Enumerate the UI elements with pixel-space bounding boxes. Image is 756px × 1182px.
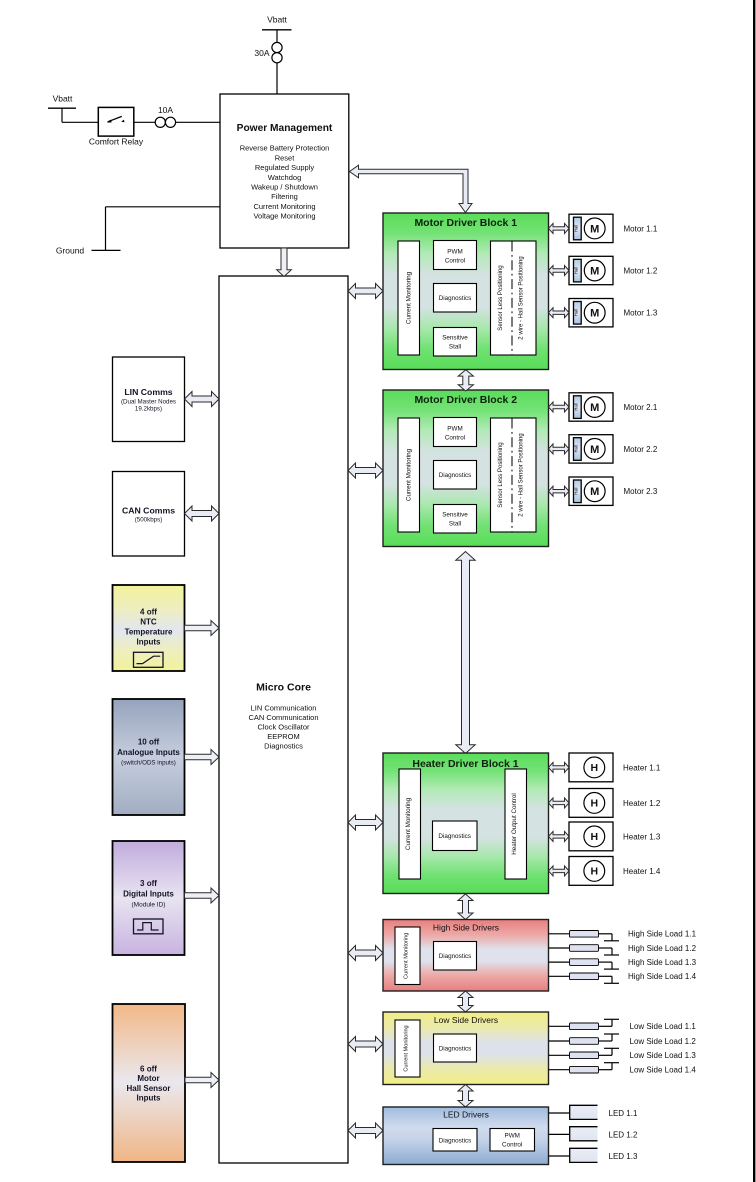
svg-text:M: M	[590, 402, 599, 414]
svg-text:Analogue Inputs: Analogue Inputs	[117, 748, 180, 757]
svg-text:H: H	[591, 798, 599, 810]
svg-text:Sensitive: Sensitive	[442, 335, 468, 342]
svg-text:H: H	[591, 762, 599, 774]
svg-text:(switch/ODS inputs): (switch/ODS inputs)	[121, 760, 176, 767]
svg-text:High Side Drivers: High Side Drivers	[433, 923, 499, 933]
svg-text:(Module ID): (Module ID)	[132, 901, 166, 908]
svg-text:Diagnostics: Diagnostics	[439, 1046, 472, 1053]
svg-text:Motor 1.1: Motor 1.1	[624, 224, 658, 233]
svg-text:Heater 1.4: Heater 1.4	[623, 867, 661, 876]
svg-text:Current Monitoring: Current Monitoring	[406, 271, 413, 324]
svg-text:M: M	[590, 486, 599, 498]
svg-text:Sensor Less Positioning: Sensor Less Positioning	[497, 442, 504, 507]
svg-text:M: M	[590, 444, 599, 456]
svg-text:Regulated Supply: Regulated Supply	[255, 163, 314, 172]
svg-text:Control: Control	[445, 258, 465, 265]
svg-text:H: H	[591, 866, 599, 878]
svg-text:LED 1.2: LED 1.2	[609, 1130, 638, 1139]
svg-text:PWM: PWM	[505, 1133, 520, 1140]
svg-text:Hall: Hall	[573, 225, 578, 232]
svg-text:LIN Communication: LIN Communication	[251, 704, 317, 713]
svg-text:PWM: PWM	[447, 249, 462, 256]
svg-text:Motor 1.3: Motor 1.3	[624, 309, 658, 318]
svg-text:LED Drivers: LED Drivers	[443, 1110, 489, 1120]
svg-text:Sensor Less Positioning: Sensor Less Positioning	[497, 265, 504, 330]
svg-text:Voltage Monitoring: Voltage Monitoring	[253, 212, 315, 221]
svg-text:H: H	[591, 831, 599, 843]
svg-text:Diagnostics: Diagnostics	[439, 472, 472, 479]
svg-text:Hall Sensor: Hall Sensor	[126, 1084, 170, 1093]
svg-text:Current Monitoring: Current Monitoring	[253, 202, 315, 211]
svg-text:M: M	[590, 308, 599, 320]
svg-text:Filtering: Filtering	[271, 192, 298, 201]
svg-text:Temperature: Temperature	[125, 628, 173, 637]
svg-text:Heater 1.2: Heater 1.2	[623, 799, 661, 808]
svg-text:Control: Control	[445, 435, 465, 442]
svg-text:Motor Driver Block 2: Motor Driver Block 2	[414, 394, 517, 406]
svg-text:Inputs: Inputs	[137, 1093, 162, 1102]
svg-text:Hall: Hall	[573, 267, 578, 274]
svg-text:10A: 10A	[158, 105, 173, 115]
svg-text:Heater 1.1: Heater 1.1	[623, 763, 661, 772]
svg-text:Low Side Load 1.2: Low Side Load 1.2	[630, 1037, 697, 1046]
svg-text:Hall: Hall	[573, 309, 578, 316]
svg-text:LED 1.3: LED 1.3	[609, 1152, 638, 1161]
svg-text:LED 1.1: LED 1.1	[609, 1109, 638, 1118]
svg-text:(Dual Master Nodes: (Dual Master Nodes	[121, 398, 176, 405]
svg-text:Inputs: Inputs	[137, 638, 162, 647]
svg-text:6 off: 6 off	[140, 1065, 157, 1074]
svg-text:2 wire - Hall Sensor Positioni: 2 wire - Hall Sensor Positioning	[519, 256, 525, 339]
svg-text:Digital Inputs: Digital Inputs	[123, 889, 174, 898]
svg-text:3 off: 3 off	[140, 879, 157, 888]
svg-text:2 wire - Hall Sensor Positioni: 2 wire - Hall Sensor Positioning	[519, 433, 525, 516]
svg-text:Heater Driver Block 1: Heater Driver Block 1	[412, 758, 518, 770]
svg-text:Current Monitoring: Current Monitoring	[406, 448, 413, 501]
svg-text:Comfort Relay: Comfort Relay	[89, 137, 144, 147]
svg-text:Motor 2.3: Motor 2.3	[624, 487, 658, 496]
svg-text:Heater Output Control: Heater Output Control	[511, 793, 518, 855]
svg-text:Diagnostics: Diagnostics	[439, 1138, 472, 1145]
svg-text:Stall: Stall	[449, 521, 461, 528]
svg-text:Low Side Drivers: Low Side Drivers	[434, 1015, 498, 1025]
svg-text:Stall: Stall	[449, 344, 461, 351]
svg-text:M: M	[590, 265, 599, 277]
svg-text:19.2kbps): 19.2kbps)	[135, 406, 162, 413]
svg-text:Wakeup / Shutdown: Wakeup / Shutdown	[251, 183, 318, 192]
svg-text:EEPROM: EEPROM	[267, 732, 300, 741]
svg-text:Heater 1.3: Heater 1.3	[623, 832, 661, 841]
svg-text:NTC: NTC	[140, 618, 157, 627]
svg-text:Low Side Load 1.4: Low Side Load 1.4	[630, 1066, 697, 1075]
svg-text:Diagnostics: Diagnostics	[264, 742, 303, 751]
svg-text:Reset: Reset	[275, 153, 296, 162]
svg-text:High Side Load 1.3: High Side Load 1.3	[628, 958, 697, 967]
svg-text:Ground: Ground	[56, 246, 85, 256]
svg-text:Hall: Hall	[573, 488, 578, 495]
svg-text:Hall: Hall	[573, 445, 578, 452]
svg-text:High Side Load 1.2: High Side Load 1.2	[628, 944, 697, 953]
svg-text:Control: Control	[502, 1142, 522, 1149]
svg-text:Diagnostics: Diagnostics	[439, 953, 472, 960]
svg-text:Current Monitoring: Current Monitoring	[404, 1025, 410, 1071]
svg-text:High Side Load 1.4: High Side Load 1.4	[628, 972, 697, 981]
svg-text:Current Monitoring: Current Monitoring	[405, 797, 412, 850]
svg-text:Diagnostics: Diagnostics	[438, 833, 471, 840]
svg-text:Watchdog: Watchdog	[268, 173, 302, 182]
svg-text:Diagnostics: Diagnostics	[439, 295, 472, 302]
svg-text:High Side Load 1.1: High Side Load 1.1	[628, 930, 697, 939]
svg-text:Motor Driver Block 1: Motor Driver Block 1	[414, 217, 517, 229]
svg-text:PWM: PWM	[447, 426, 462, 433]
svg-text:4 off: 4 off	[140, 608, 157, 617]
svg-text:M: M	[590, 223, 599, 235]
svg-text:Motor 1.2: Motor 1.2	[624, 266, 658, 275]
svg-text:Clock Oscillator: Clock Oscillator	[257, 723, 310, 732]
svg-text:Motor 2.2: Motor 2.2	[624, 445, 658, 454]
svg-text:(500kbps): (500kbps)	[135, 517, 163, 524]
svg-text:CAN Communication: CAN Communication	[248, 713, 318, 722]
svg-text:Low Side Load 1.3: Low Side Load 1.3	[630, 1051, 697, 1060]
svg-text:Low Side Load 1.1: Low Side Load 1.1	[630, 1022, 697, 1031]
svg-text:Hall: Hall	[573, 403, 578, 410]
svg-text:Vbatt: Vbatt	[267, 15, 287, 25]
svg-text:30A: 30A	[254, 48, 269, 58]
svg-text:Micro Core: Micro Core	[256, 682, 311, 694]
svg-text:Vbatt: Vbatt	[53, 94, 73, 104]
svg-text:10 off: 10 off	[138, 738, 160, 747]
svg-text:LIN Comms: LIN Comms	[124, 387, 172, 397]
svg-text:CAN Comms: CAN Comms	[122, 505, 175, 515]
svg-text:Motor 2.1: Motor 2.1	[624, 403, 658, 412]
svg-text:Reverse Battery Protection: Reverse Battery Protection	[240, 144, 330, 153]
svg-text:Sensitive: Sensitive	[442, 512, 468, 519]
svg-text:Current Monitoring: Current Monitoring	[404, 933, 410, 979]
svg-text:Motor: Motor	[137, 1074, 159, 1083]
svg-text:Power Management: Power Management	[237, 123, 333, 134]
